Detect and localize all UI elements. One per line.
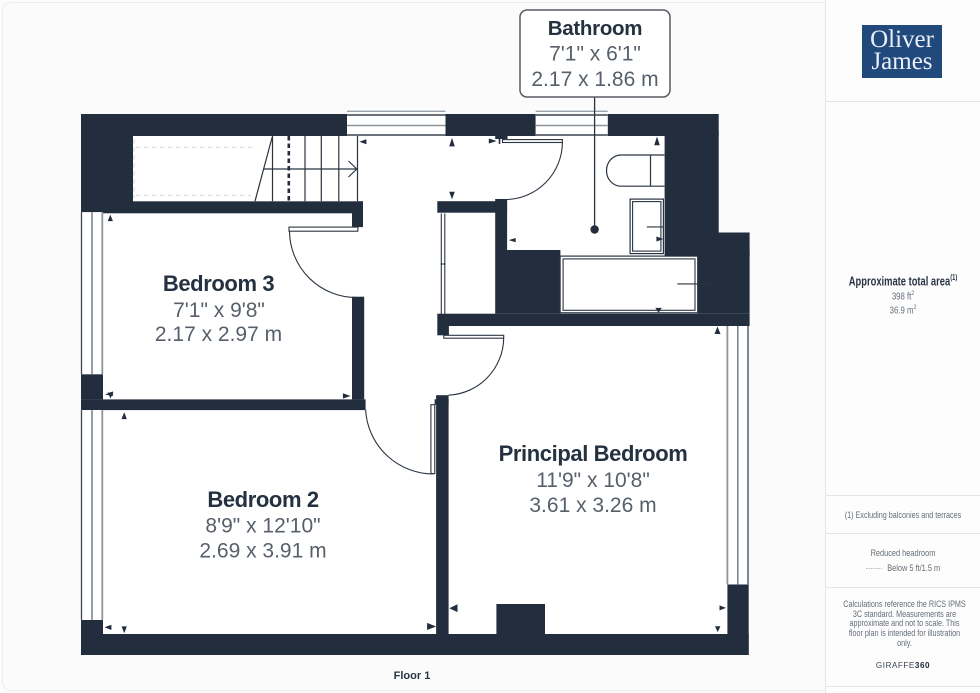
svg-text:2.17 x 2.97 m: 2.17 x 2.97 m xyxy=(155,323,282,346)
svg-text:7'1" x 6'1": 7'1" x 6'1" xyxy=(549,43,641,66)
svg-text:7'1" x 9'8": 7'1" x 9'8" xyxy=(173,299,265,322)
svg-text:Floor 1: Floor 1 xyxy=(394,670,431,682)
svg-text:3.61 x 3.26 m: 3.61 x 3.26 m xyxy=(529,494,656,517)
svg-text:Principal Bedroom: Principal Bedroom xyxy=(499,441,688,466)
svg-text:Bathroom: Bathroom xyxy=(548,17,642,40)
svg-text:Bedroom 2: Bedroom 2 xyxy=(207,487,318,512)
svg-text:2.17 x 1.86 m: 2.17 x 1.86 m xyxy=(531,68,658,91)
svg-text:11'9" x 10'8": 11'9" x 10'8" xyxy=(536,469,650,492)
svg-text:Bedroom 3: Bedroom 3 xyxy=(163,271,274,296)
svg-text:8'9" x 12'10": 8'9" x 12'10" xyxy=(205,515,320,538)
svg-text:2.69 x 3.91 m: 2.69 x 3.91 m xyxy=(199,540,326,563)
